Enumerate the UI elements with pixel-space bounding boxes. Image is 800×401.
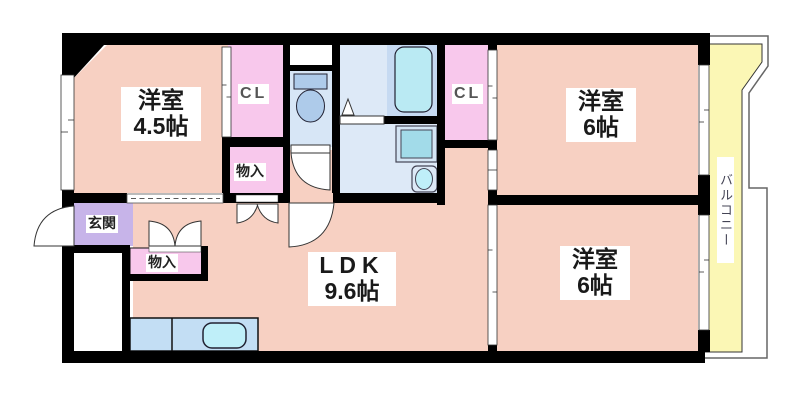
storage-1-name: 物入 — [236, 164, 264, 180]
floorplan-drawing — [0, 0, 800, 401]
western-room-1-name: 洋室 — [123, 88, 199, 114]
western-room-2-label: 洋室 6帖 — [566, 88, 636, 142]
western-room-1-size: 4.5帖 — [123, 114, 199, 140]
washbasin-bowl-icon — [416, 169, 433, 190]
balcony — [703, 36, 768, 358]
entrance-name: 玄関 — [88, 216, 116, 232]
balcony-label: バルコニー — [717, 157, 734, 263]
closet-1-slider — [222, 47, 231, 137]
ldk-name: LDK — [310, 253, 394, 279]
western-room-1-label: 洋室 4.5帖 — [121, 87, 201, 141]
bath-door-panel — [340, 116, 384, 124]
closet-1-name: CL — [240, 85, 267, 103]
window-left — [61, 75, 74, 190]
bathtub-icon — [395, 47, 432, 112]
toilet-bowl-icon — [297, 90, 325, 122]
western-room-3-name: 洋室 — [562, 247, 628, 273]
window-balcony-top — [699, 65, 709, 175]
closet-1-label: CL — [238, 84, 269, 104]
balcony-name: バルコニー — [718, 173, 733, 248]
closet-2-slider — [488, 50, 497, 140]
storage-2-label: 物入 — [146, 254, 178, 272]
entrance-door-swing — [34, 206, 74, 246]
floorplan-canvas: 洋室 4.5帖 CL 物入 洋室 6帖 CL バルコニー 玄関 物入 LDK 9… — [0, 0, 800, 401]
storage-1-label: 物入 — [234, 163, 266, 181]
kitchen-sink-icon — [203, 323, 246, 348]
western-room-2-size: 6帖 — [568, 115, 634, 141]
window-balcony-bottom — [699, 215, 709, 330]
storage-1-opening — [236, 195, 278, 202]
toilet-door-panel — [291, 145, 330, 153]
washing-machine-drum-icon — [401, 130, 432, 158]
ldk-label: LDK 9.6帖 — [308, 252, 396, 306]
entrance-label: 玄関 — [86, 215, 118, 233]
western-room-3-label: 洋室 6帖 — [560, 246, 630, 300]
ldk-size: 9.6帖 — [310, 279, 394, 305]
closet-2-label: CL — [452, 84, 483, 104]
room3-entry-slider — [488, 205, 497, 345]
western-room-3-size: 6帖 — [562, 273, 628, 299]
closet-2-name: CL — [454, 85, 481, 103]
toilet-tank-icon — [294, 74, 327, 89]
western-room-2-name: 洋室 — [568, 89, 634, 115]
storage-2-name: 物入 — [148, 255, 176, 271]
